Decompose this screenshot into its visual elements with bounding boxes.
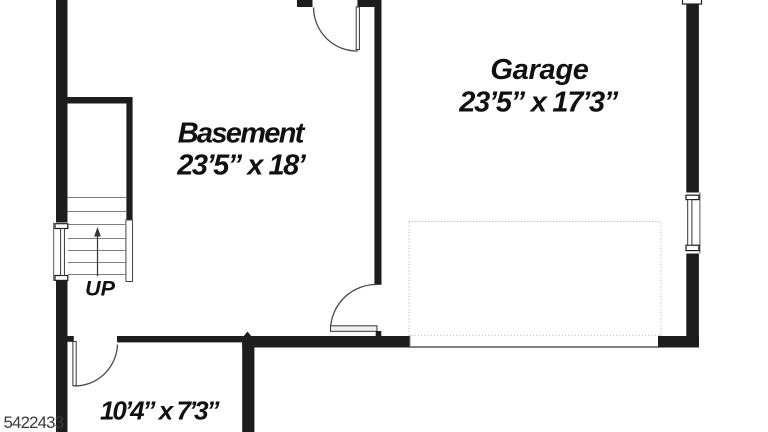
svg-text:Garage: Garage <box>490 54 588 86</box>
svg-text:23’5” x 18’: 23’5” x 18’ <box>176 149 306 181</box>
svg-text:5422433: 5422433 <box>4 413 64 432</box>
svg-text:Basement: Basement <box>178 117 306 149</box>
svg-text:UP: UP <box>85 277 116 301</box>
svg-text:23’5” x 17’3”: 23’5” x 17’3” <box>458 87 619 119</box>
svg-text:10’4” x 7’3”: 10’4” x 7’3” <box>100 396 220 426</box>
